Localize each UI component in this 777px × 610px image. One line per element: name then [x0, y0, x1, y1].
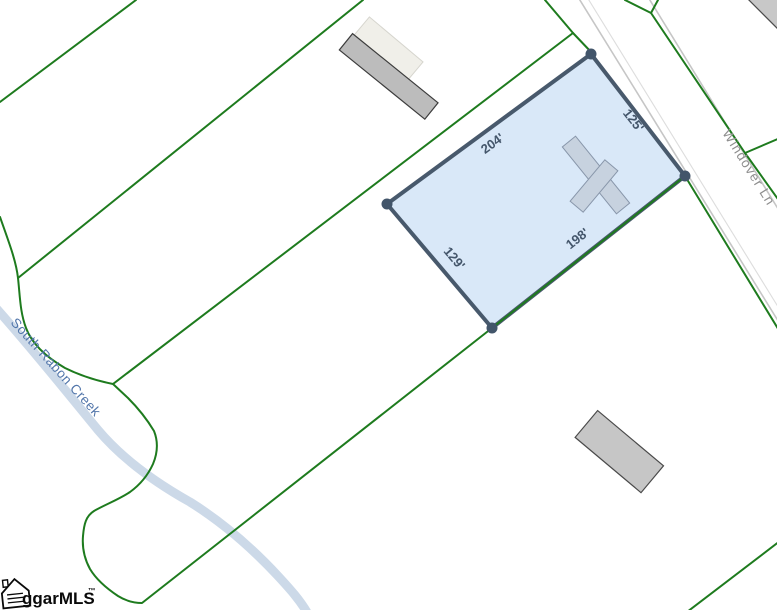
corner-dot-east: [680, 171, 691, 182]
plat-map-svg: 204' 125' 198' 129' Windover Ln South Ra…: [0, 0, 777, 610]
map-background: [0, 0, 777, 610]
plat-map-canvas[interactable]: 204' 125' 198' 129' Windover Ln South Ra…: [0, 0, 777, 610]
corner-dot-north: [586, 49, 597, 60]
corner-dot-south: [487, 323, 498, 334]
mls-logo-trademark: ™: [88, 586, 96, 595]
mls-logo-text: ggarMLS: [22, 589, 95, 608]
corner-dot-west: [382, 199, 393, 210]
